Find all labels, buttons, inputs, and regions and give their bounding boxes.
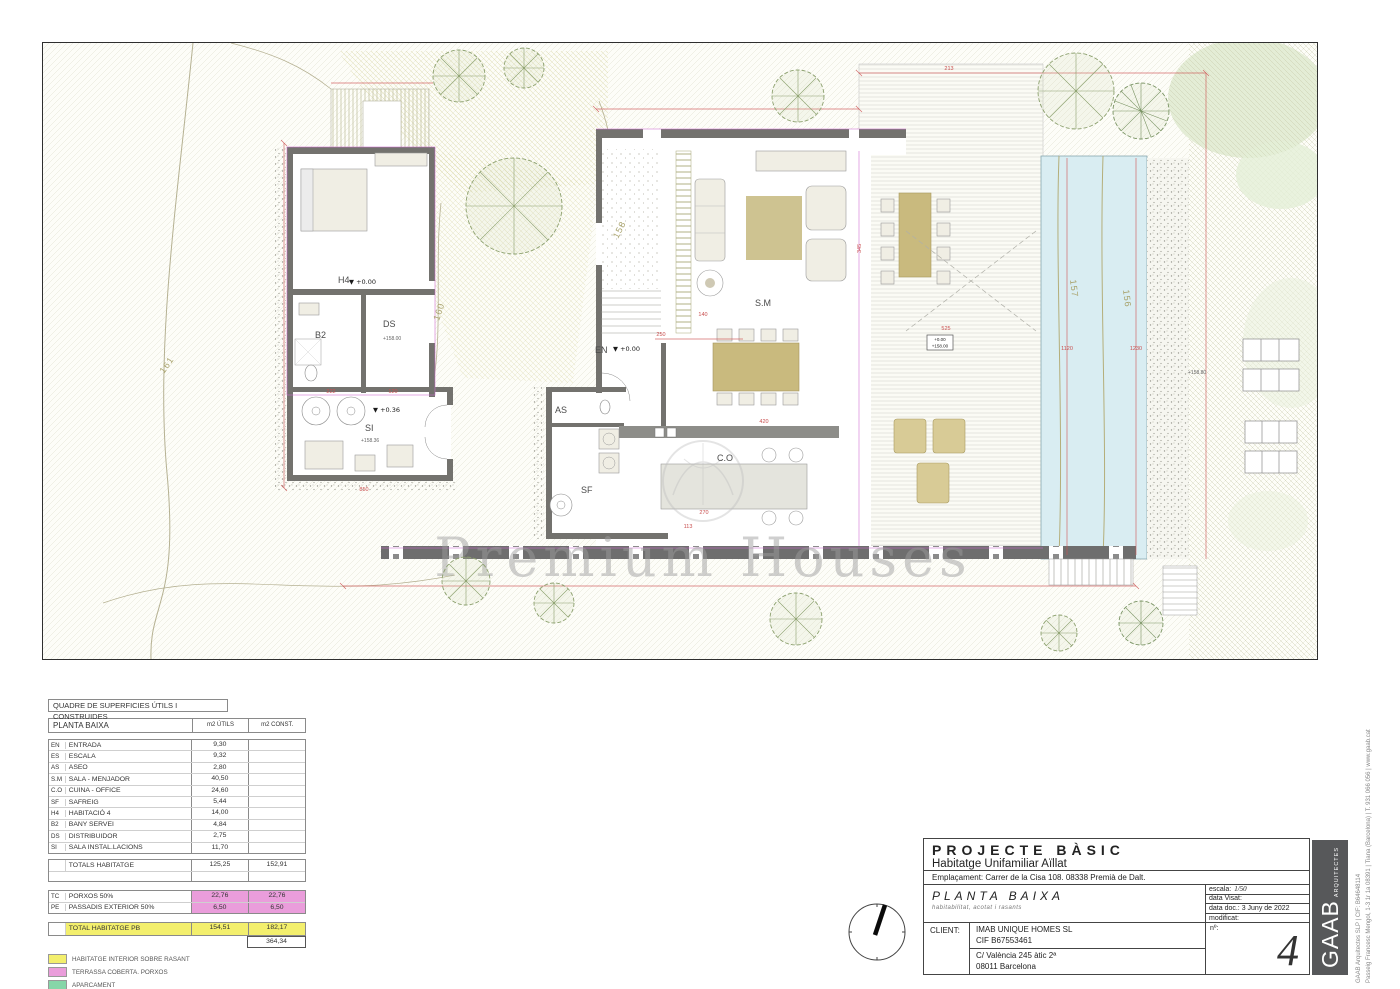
dim-420: 420 [759,419,768,425]
table-row: DSDISTRIBUIDOR2,75 [49,831,305,842]
grand-total-value: 364,34 [247,936,306,948]
floor-plan-drawing: Premium Houses H4 B2 DS SI EN AS S.M C.O [42,42,1318,660]
legend-item: HABITATGE INTERIOR SOBRE RASANT [48,953,306,966]
dim-525: 525 [941,326,950,332]
level-box-rel: +0.00 [934,337,946,342]
sheet-subtitle: habitabilitat, acotat i rasants [932,905,1205,911]
table-row: SFSAFREIG5,44 [49,797,305,808]
extras-block: TC PORXOS 50% 22,76 22,76 PE PASSADIS EX… [48,890,306,914]
meta-modificat: modificat: [1206,914,1309,923]
level-si-abs: +158.36 [361,438,379,444]
meta-datadoc: data doc.: 3 Juny de 2022 [1206,904,1309,914]
sheet-number-cell: nº: 4 [1205,923,1309,974]
extra-row-tc: TC PORXOS 50% 22,76 22,76 [49,891,305,902]
table-row: C.OCUINA - OFFICE24,60 [49,786,305,797]
title-block-header: PROJECTE BÀSIC Habitatge Unifamiliar Aïl… [924,839,1309,871]
kitchen-counter [619,426,839,438]
swimming-pool [1041,156,1147,559]
meta-escala: escala: 1/50 [1206,885,1309,895]
dim-250: 250 [656,332,665,338]
firm-info-line1: GAAB Arquitectes SLP | CIF: B64648114 [1355,687,1365,983]
room-label-h4: H4 [338,275,350,285]
watermark-text: Premium Houses [434,526,972,589]
areas-table-header: PLANTA BAIXA m2 ÚTILS m2 CONST. [48,718,306,733]
grand-total-row: 364,34 [48,936,306,948]
legend-item: APARCAMENT [48,979,306,989]
room-label-sm: S.M [755,298,771,308]
dim-850: 850 [359,487,368,493]
dim-113: 113 [684,524,693,530]
table-row: ENENTRADA9,30 [49,740,305,751]
legend-swatch-yellow [48,954,67,964]
firm-name-sub: ARQUITECTES [1334,847,1340,897]
room-label-si: SI [365,423,374,433]
areas-rows: ENENTRADA9,30 ESESCALA9,32 ASASEO2,80 S.… [48,739,306,854]
areas-table: QUADRE DE SUPERFICIES ÚTILS I CONSTRUIDE… [48,699,306,989]
dim-270: 270 [699,510,708,516]
dim-345: 345 [857,244,863,253]
extra-row-pe: PE PASSADIS EXTERIOR 50% 6,50 6,50 [49,903,305,913]
sheet-number-label: nº: [1210,925,1218,932]
total-pb-block: TOTAL HABITATGE PB 154,51 182,17 [48,922,306,936]
sheet-title: PLANTA BAIXA [932,889,1205,903]
firm-name: GAAB [1312,900,1348,968]
drawing-sheet: Premium Houses H4 B2 DS SI EN AS S.M C.O [0,0,1400,989]
client-info: IMAB UNIQUE HOMES SL CIF B67553461 C/ Va… [970,923,1205,974]
meta-visat: data Visat: [1206,895,1309,905]
level-ds-abs: +158.00 [383,336,401,342]
north-needle [875,905,885,935]
col-name: PLANTA BAIXA [49,721,192,730]
table-row: ESESCALA9,32 [49,751,305,762]
table-row: H4HABITACIÓ 414,00 [49,808,305,819]
table-row: ASASEO2,80 [49,763,305,774]
north-arrow [844,899,910,965]
dim-120: 120 [388,389,397,395]
site-plan-svg: Premium Houses H4 B2 DS SI EN AS S.M C.O [43,43,1317,659]
dim-1230: 1230 [1130,346,1142,352]
totals-row: TOTALS HABITATGE 125,25 152,91 [49,860,305,873]
dim-1120: 1120 [1061,346,1073,352]
project-subtitle: Habitatge Unifamiliar Aïllat [932,858,1301,870]
garage-ramp [331,89,429,149]
level-en: ▼ +0.00 [613,345,640,353]
level-si: ▼ +0.36 [373,406,400,414]
legend-swatch-pink [48,967,67,977]
table-row: S.MSALA - MENJADOR40,50 [49,774,305,785]
col-utils: m2 ÚTILS [192,719,249,732]
firm-logo-block: GAAB ARQUITECTES [1312,840,1348,975]
level-box-abs: +158.00 [932,344,949,349]
firm-info-line2: Passeig Francesc Mengol, 1-3 1r 1a 08391… [1365,687,1375,983]
gravel-strip [1147,158,1189,559]
firm-contact-info: GAAB Arquitectes SLP | CIF: B64648114 Pa… [1355,687,1374,983]
col-const: m2 CONST. [248,719,305,732]
escala-value: 1/50 [1234,885,1246,893]
room-label-sf: SF [581,485,593,495]
project-type: PROJECTE BÀSIC [932,842,1301,858]
client-name-cif: IMAB UNIQUE HOMES SL CIF B67553461 [970,923,1205,949]
room-label-en: EN [595,345,608,355]
room-label-ds: DS [383,319,396,329]
level-h4: ▼ +0.00 [349,278,376,286]
table-row: B2BANY SERVEI4,84 [49,820,305,831]
totals-block: TOTALS HABITATGE 125,25 152,91 [48,859,306,883]
project-location: Emplaçament: Carrer de la Cisa 108. 0833… [924,871,1309,885]
rug [746,196,802,260]
dim-213: 213 [944,66,953,72]
level-pool: +158.80 [1188,370,1206,376]
total-pb-row: TOTAL HABITATGE PB 154,51 182,17 [49,923,305,935]
areas-table-title: QUADRE DE SUPERFICIES ÚTILS I CONSTRUIDE… [48,699,228,712]
client-label: CLIENT: [924,923,970,974]
dim-140: 140 [698,312,707,318]
room-label-as: AS [555,405,567,415]
legend-item: TERRASSA COBERTA. PORXOS [48,966,306,979]
room-label-b2: B2 [315,330,326,340]
client-address: C/ València 245 àtic 2ª 08011 Barcelona [970,949,1205,974]
table-row: SISALA INSTAL.LACIONS11,70 [49,843,305,853]
title-block: PROJECTE BÀSIC Habitatge Unifamiliar Aïl… [923,838,1310,975]
legend: HABITATGE INTERIOR SOBRE RASANT TERRASSA… [48,953,306,989]
room-label-co: C.O [717,453,733,463]
sheet-meta: escala: 1/50 data Visat: data doc.: 3 Ju… [1205,885,1309,922]
sheet-title-cell: PLANTA BAIXA habitabilitat, acotat i ras… [924,885,1205,922]
sheet-number: 4 [1277,925,1299,976]
dim-222: 222 [326,389,335,395]
legend-swatch-green [48,980,67,989]
